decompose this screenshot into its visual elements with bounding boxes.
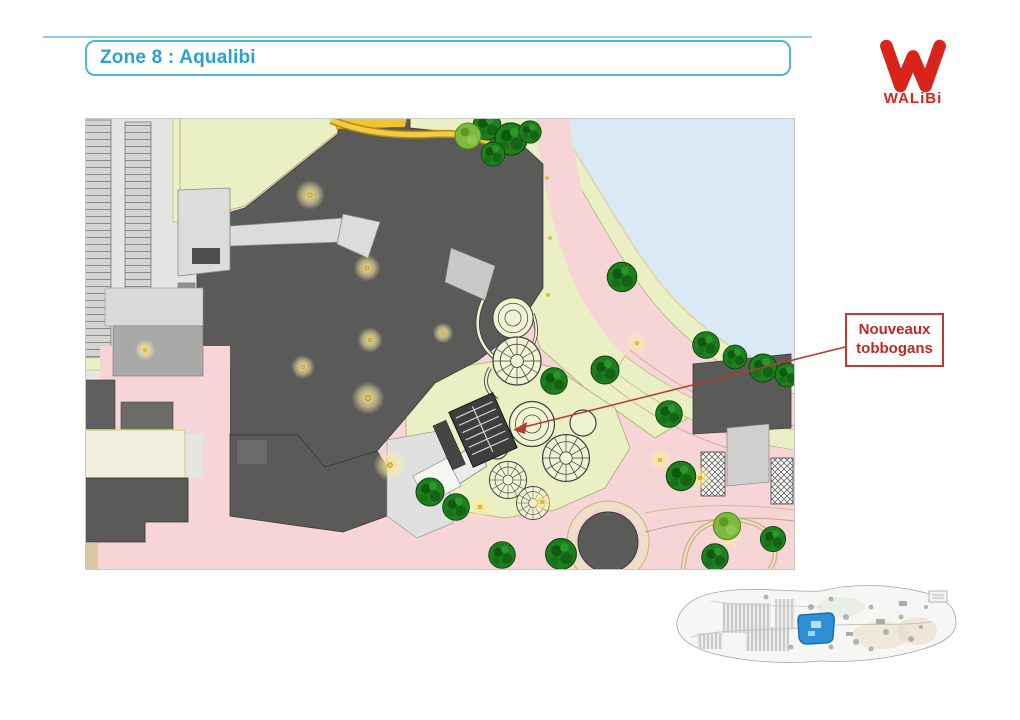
site-plan-map	[85, 118, 795, 570]
walibi-logo: WALiBi	[866, 38, 960, 112]
walibi-w-icon	[876, 38, 950, 94]
walibi-wordmark: WALiBi	[884, 90, 943, 107]
callout-line1: Nouveaux	[859, 321, 931, 340]
header-divider	[43, 36, 812, 38]
page-title-box: Zone 8 : Aqualibi	[85, 40, 791, 76]
callout-box: Nouveaux tobbogans	[845, 313, 944, 367]
slide-page: Zone 8 : Aqualibi WALiBi	[0, 0, 1020, 720]
park-overview-map	[671, 577, 962, 669]
overview-highlight	[798, 613, 834, 644]
page-title: Zone 8 : Aqualibi	[100, 47, 256, 69]
callout-line2: tobbogans	[856, 340, 933, 359]
